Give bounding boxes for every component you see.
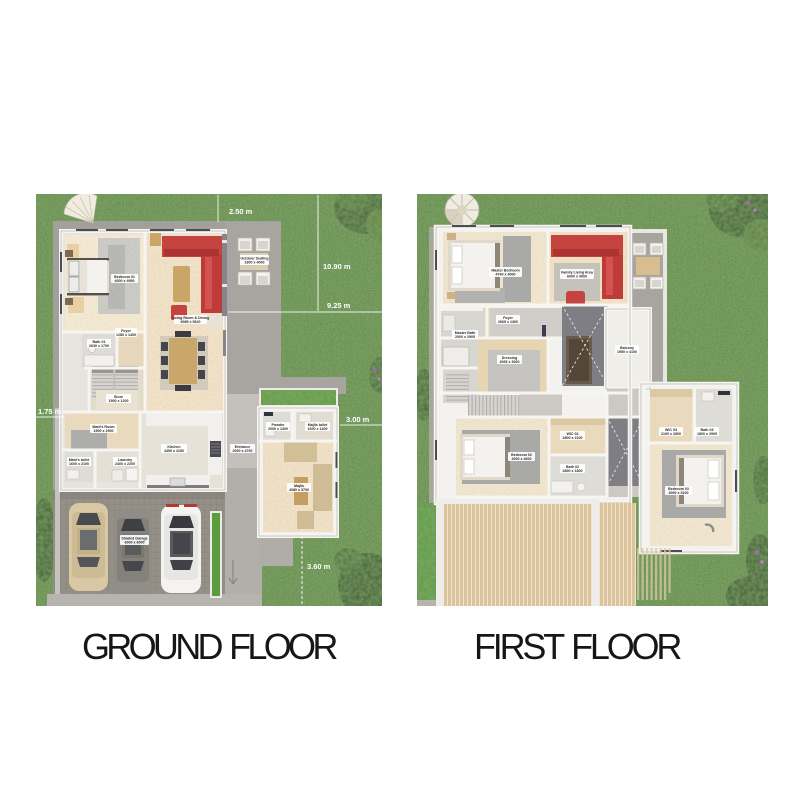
svg-text:1900 x 1200: 1900 x 1200: [109, 399, 129, 403]
svg-text:10.90 m: 10.90 m: [323, 262, 351, 271]
svg-text:1800 x 2905: 1800 x 2905: [697, 432, 717, 436]
svg-text:4000 x 4950: 4000 x 4950: [115, 279, 135, 283]
svg-text:1600 x 2100: 1600 x 2100: [69, 462, 89, 466]
svg-text:1950 x 4100: 1950 x 4100: [617, 350, 637, 354]
svg-text:1900 x 1900: 1900 x 1900: [94, 429, 114, 433]
svg-text:4080 x 3700: 4080 x 3700: [289, 488, 309, 492]
svg-text:4000 x 4600: 4000 x 4600: [512, 457, 532, 461]
svg-text:2665 x 3060: 2665 x 3060: [500, 360, 520, 364]
svg-text:2100 x 2800: 2100 x 2800: [661, 432, 681, 436]
svg-text:2665 x 1300: 2665 x 1300: [498, 320, 518, 324]
svg-text:3.00 m: 3.00 m: [346, 415, 370, 424]
svg-text:1280 x 1400: 1280 x 1400: [116, 333, 136, 337]
svg-text:2630 x 1700: 2630 x 1700: [89, 344, 109, 348]
svg-text:2000 x 4760: 2000 x 4760: [233, 449, 253, 453]
svg-text:6000 x 6000: 6000 x 6000: [125, 540, 145, 544]
svg-text:1600 x 1400: 1600 x 1400: [308, 427, 328, 431]
svg-text:4740 x 4000: 4740 x 4000: [496, 272, 516, 276]
svg-text:2000 x 2905: 2000 x 2905: [455, 335, 475, 339]
svg-text:3.60 m: 3.60 m: [307, 562, 331, 571]
svg-text:6600 x 4000: 6600 x 4000: [567, 274, 587, 278]
svg-text:2400 x 2200: 2400 x 2200: [115, 462, 135, 466]
svg-text:1.75 m: 1.75 m: [38, 407, 62, 416]
svg-text:2000 x 1400: 2000 x 1400: [268, 427, 288, 431]
svg-text:4450 x 4150: 4450 x 4150: [164, 449, 184, 453]
svg-text:2800 x 2100: 2800 x 2100: [563, 436, 583, 440]
svg-text:2800 x 1800: 2800 x 1800: [563, 469, 583, 473]
svg-text:9.25 m: 9.25 m: [327, 301, 351, 310]
svg-text:4000 x 3100: 4000 x 3100: [669, 491, 689, 495]
svg-text:9085 x 5620: 9085 x 5620: [181, 320, 201, 324]
svg-text:3300 x 4000: 3300 x 4000: [245, 260, 265, 264]
svg-text:2.50 m: 2.50 m: [229, 207, 253, 216]
